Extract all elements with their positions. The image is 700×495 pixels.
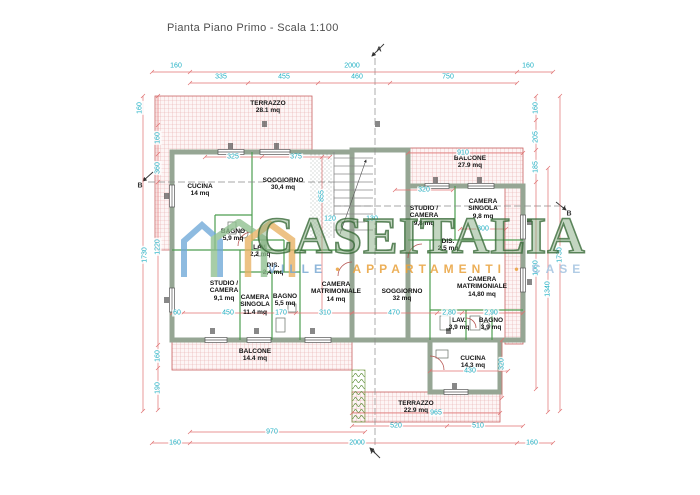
- dim-label: 335: [214, 74, 228, 81]
- dim-label: 185: [533, 160, 540, 174]
- dim-label: 455: [277, 74, 291, 81]
- dim-label: 510: [471, 423, 485, 430]
- room-label: TERRAZZO28.1 mq: [250, 100, 285, 115]
- dim-label: 60: [172, 310, 182, 317]
- dim-label: 300: [476, 226, 490, 233]
- dim-label: 2000: [348, 440, 366, 447]
- dim-label: 375: [289, 154, 303, 161]
- room-label: SOGGIORNO30,4 mq: [263, 177, 304, 192]
- dim-label: 160: [137, 101, 144, 115]
- dim-label: 1060: [533, 259, 540, 277]
- dim-label: 160: [525, 440, 539, 447]
- room-label: CAMERA MATRIMONIALE14,80 mq: [454, 276, 510, 298]
- room-label: BALCONE27.9 mq: [454, 155, 486, 170]
- dim-label: 170: [274, 310, 288, 317]
- dim-label: 325: [226, 154, 240, 161]
- room-label: CAMERA SINGOLA9,8 mq: [455, 198, 511, 220]
- room-label: BAGNO3,9 mq: [479, 317, 503, 332]
- dim-label: 160: [155, 349, 162, 363]
- dim-label: 310: [318, 310, 332, 317]
- dim-label: 2,80: [441, 310, 457, 317]
- dim-label: 1220: [155, 238, 162, 256]
- room-label: BAGNO5,9 mq: [221, 228, 245, 243]
- room-label: SOGGIORNO32 mq: [382, 288, 423, 303]
- dim-label: 160: [155, 131, 162, 145]
- room-label: STUDIO / CAMERA9,8 mq: [396, 205, 452, 227]
- dim-label: 130: [365, 216, 379, 223]
- room-label: DIS.2,5 mq: [438, 238, 459, 253]
- dim-label: 360: [155, 161, 162, 175]
- section-marker-a-top: A: [376, 47, 381, 54]
- planter-strip: [352, 370, 365, 422]
- room-label: DIS.2,4 mq: [263, 262, 284, 277]
- dim-label: 1730: [557, 246, 564, 264]
- dim-label: 965: [429, 410, 443, 417]
- dim-label: 470: [387, 310, 401, 317]
- room-label: LAV.2,2 mq: [250, 244, 271, 259]
- dim-label: 160: [169, 63, 183, 70]
- dim-label: 160: [533, 101, 540, 115]
- room-label: CUCINA14 mq: [187, 183, 212, 198]
- floorplan-page: Pianta Piano Primo - Scala 1:100: [0, 0, 700, 495]
- dim-label: 120: [323, 216, 337, 223]
- room-label: BAGNO5,5 mq: [273, 293, 297, 308]
- dim-label: 430: [463, 368, 477, 375]
- dim-label: 2,90: [483, 310, 499, 317]
- dim-label: 205: [533, 130, 540, 144]
- dim-label: 450: [221, 310, 235, 317]
- dim-label: 970: [265, 429, 279, 436]
- dim-label: 160: [168, 440, 182, 447]
- dim-label: 2000: [343, 63, 361, 70]
- section-marker-b-right: B: [566, 211, 571, 218]
- dim-label: 320: [417, 187, 431, 194]
- dim-label: 160: [521, 63, 535, 70]
- dim-label: 190: [155, 381, 162, 395]
- dim-label: 460: [350, 74, 364, 81]
- room-label: CAMERA MATRIMONIALE14 mq: [308, 281, 364, 303]
- section-marker-b-left: B: [137, 183, 142, 190]
- dim-label: 1340: [545, 280, 552, 298]
- room-label: BALCONE14.4 mq: [239, 348, 271, 363]
- room-label: LAV.3,9 mq: [449, 317, 470, 332]
- dim-label: 520: [389, 423, 403, 430]
- section-marker-a-bottom: A: [370, 449, 375, 456]
- dim-label: 320: [499, 357, 506, 371]
- dim-label: 855: [319, 189, 326, 203]
- dim-label: 1730: [142, 246, 149, 264]
- dim-label: 750: [441, 74, 455, 81]
- dim-label: 910: [456, 150, 470, 157]
